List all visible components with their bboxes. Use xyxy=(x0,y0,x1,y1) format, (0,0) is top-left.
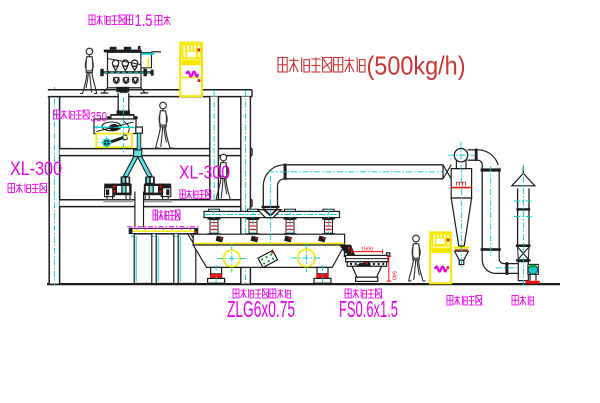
svg-text:540: 540 xyxy=(391,271,397,280)
svg-text:ZLG6x0.75: ZLG6x0.75 xyxy=(227,296,295,322)
svg-text:1500: 1500 xyxy=(361,247,373,253)
svg-text:(500kg/h): (500kg/h) xyxy=(367,51,466,81)
svg-text:XL-300: XL-300 xyxy=(10,159,62,180)
svg-text:1.5: 1.5 xyxy=(135,11,153,30)
svg-text:350: 350 xyxy=(91,109,108,125)
svg-text:FS0.6x1.5: FS0.6x1.5 xyxy=(339,296,398,322)
svg-text:XL-300: XL-300 xyxy=(179,163,230,183)
